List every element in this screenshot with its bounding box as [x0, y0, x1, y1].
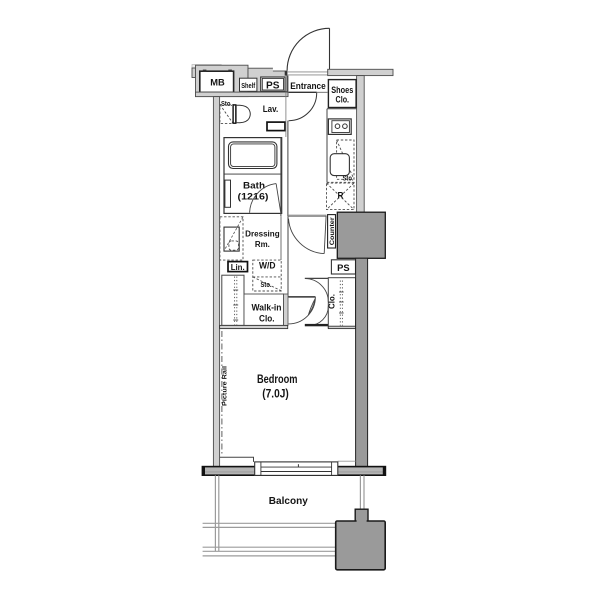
svg-text:Walk-in: Walk-in [252, 303, 282, 313]
svg-text:Dressing: Dressing [245, 228, 280, 238]
svg-text:Picture Rail: Picture Rail [222, 366, 229, 406]
svg-text:Shelf: Shelf [241, 81, 255, 90]
svg-text:Clo.: Clo. [259, 314, 275, 324]
svg-text:Sto.: Sto. [261, 280, 272, 289]
svg-text:PS: PS [337, 263, 350, 274]
svg-text:R: R [338, 191, 345, 201]
svg-text:Rm.: Rm. [255, 239, 270, 249]
svg-text:Sto.: Sto. [221, 99, 232, 108]
svg-text:Counter: Counter [329, 217, 336, 246]
svg-text:Clo.: Clo. [326, 294, 336, 309]
svg-text:Clo.: Clo. [336, 95, 350, 105]
svg-text:Bedroom: Bedroom [257, 372, 298, 386]
svg-text:Lav.: Lav. [263, 104, 279, 115]
svg-text:(1216): (1216) [238, 191, 269, 202]
svg-text:Balcony: Balcony [269, 496, 308, 507]
svg-text:PS: PS [266, 81, 280, 92]
svg-text:MB: MB [210, 78, 225, 89]
svg-text:Sto.: Sto. [343, 173, 354, 182]
svg-text:(7.0J): (7.0J) [262, 386, 289, 400]
svg-text:W/D: W/D [259, 261, 276, 271]
svg-text:Lin.: Lin. [231, 262, 245, 272]
svg-text:Entrance: Entrance [290, 81, 326, 91]
